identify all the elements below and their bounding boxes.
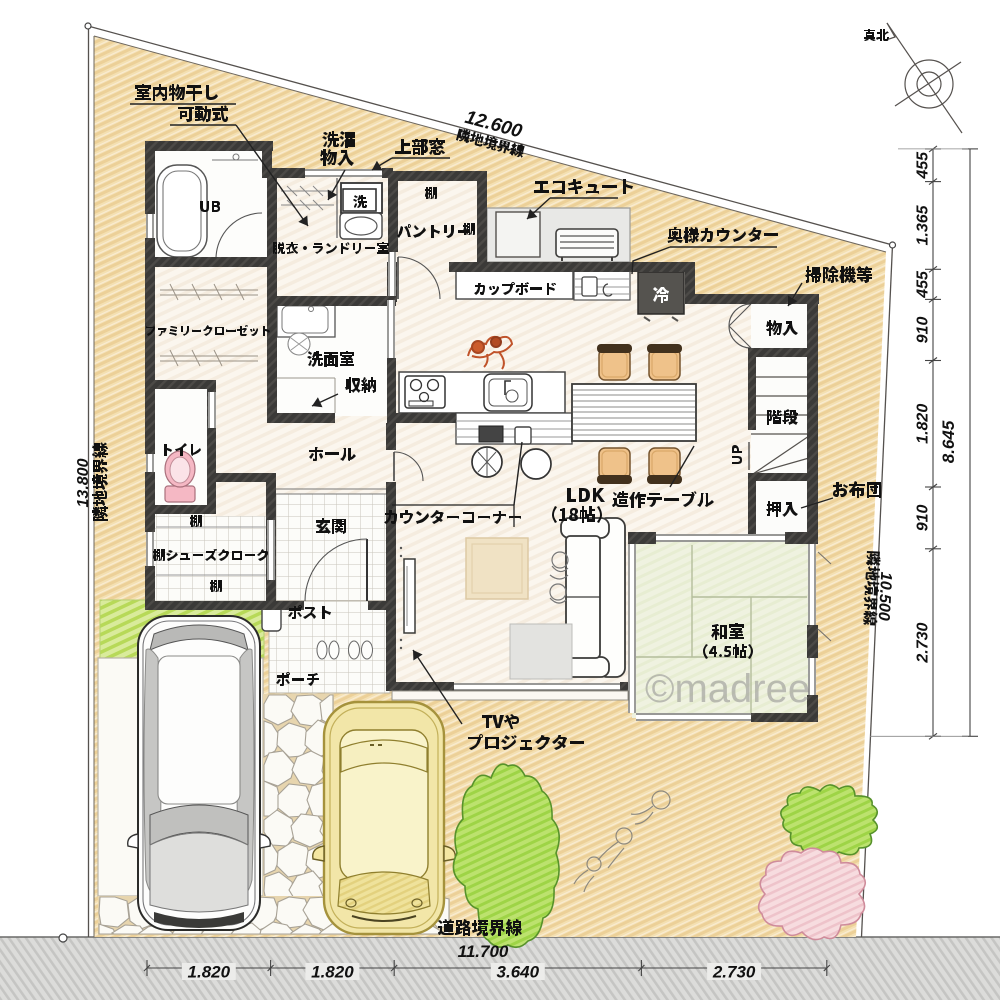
svg-text:1.820: 1.820: [188, 963, 231, 982]
svg-text:1.365: 1.365: [915, 204, 932, 245]
svg-text:910: 910: [915, 317, 932, 344]
svg-text:8.645: 8.645: [939, 420, 958, 463]
svg-text:455: 455: [915, 151, 932, 180]
svg-text:455: 455: [915, 270, 932, 299]
svg-text:910: 910: [915, 504, 932, 531]
svg-text:10.500: 10.500: [875, 571, 895, 621]
svg-text:2.730: 2.730: [915, 622, 932, 663]
svg-text:1.820: 1.820: [915, 404, 932, 444]
svg-text:1.820: 1.820: [311, 963, 354, 982]
svg-text:13.800: 13.800: [75, 458, 92, 507]
svg-text:2.730: 2.730: [712, 963, 756, 982]
svg-text:©madree: ©madree: [645, 667, 810, 711]
svg-text:11.700: 11.700: [458, 942, 509, 961]
svg-text:3.640: 3.640: [497, 963, 540, 982]
